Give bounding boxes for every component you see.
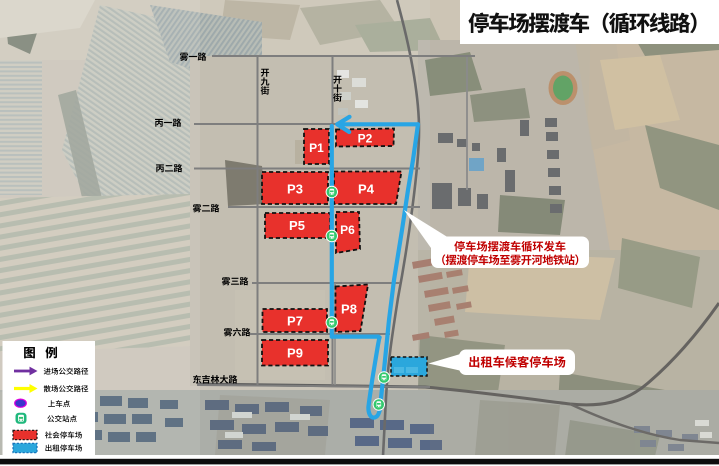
svg-text:P2: P2 (358, 131, 373, 145)
svg-text:P5: P5 (289, 218, 305, 233)
svg-text:P3: P3 (287, 182, 303, 197)
svg-text:P6: P6 (340, 223, 355, 237)
svg-text:P1: P1 (309, 141, 324, 155)
svg-text:P8: P8 (341, 302, 357, 317)
svg-text:P9: P9 (287, 346, 303, 361)
svg-text:P7: P7 (287, 314, 303, 329)
svg-text:P4: P4 (358, 182, 375, 197)
